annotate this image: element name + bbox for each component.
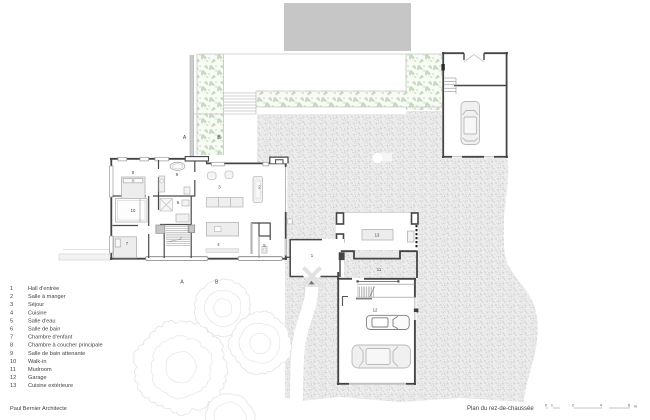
svg-text:4: 4	[10, 310, 13, 316]
svg-text:Chambre d'enfant: Chambre d'enfant	[28, 335, 73, 341]
svg-text:2: 2	[10, 294, 13, 300]
svg-text:12: 12	[373, 308, 378, 313]
svg-text:7: 7	[10, 335, 13, 341]
svg-text:Cuisine extérieure: Cuisine extérieure	[28, 383, 73, 389]
svg-text:6: 6	[10, 327, 13, 333]
svg-text:13: 13	[10, 383, 16, 389]
svg-text:11: 11	[377, 267, 382, 272]
svg-text:8: 8	[10, 343, 13, 349]
svg-text:12: 12	[10, 375, 16, 381]
svg-text:Salle d'eau: Salle d'eau	[28, 318, 56, 324]
svg-text:Séjour: Séjour	[28, 302, 44, 308]
svg-text:Cuisine: Cuisine	[28, 310, 47, 316]
svg-text:3: 3	[10, 302, 13, 308]
svg-text:2: 2	[572, 404, 574, 408]
svg-text:11: 11	[10, 367, 16, 373]
svg-text:8: 8	[628, 404, 630, 408]
svg-text:5: 5	[10, 318, 13, 324]
svg-text:10: 10	[10, 359, 16, 365]
svg-text:Salle de bain attenante: Salle de bain attenante	[28, 351, 85, 357]
svg-text:4: 4	[600, 404, 602, 408]
svg-text:Hall d'entrée: Hall d'entrée	[28, 286, 59, 292]
svg-text:13: 13	[375, 233, 380, 238]
svg-text:9: 9	[10, 351, 13, 357]
svg-text:m: m	[634, 405, 637, 409]
svg-text:Salle à manger: Salle à manger	[28, 294, 66, 300]
svg-text:Plan du rez-de-chaussée: Plan du rez-de-chaussée	[467, 406, 534, 412]
svg-text:Garage: Garage	[28, 375, 47, 381]
svg-text:Walk-in: Walk-in	[28, 359, 46, 365]
svg-text:1: 1	[551, 404, 553, 408]
svg-text:10: 10	[131, 208, 136, 213]
svg-text:Paul Bernier Architecte: Paul Bernier Architecte	[10, 406, 67, 412]
svg-text:0: 0	[545, 404, 547, 408]
svg-text:Salle de bain: Salle de bain	[28, 327, 60, 333]
svg-text:Chambre à coucher principale: Chambre à coucher principale	[28, 343, 103, 349]
svg-text:Mudroom: Mudroom	[28, 367, 52, 373]
svg-text:1: 1	[10, 286, 13, 292]
